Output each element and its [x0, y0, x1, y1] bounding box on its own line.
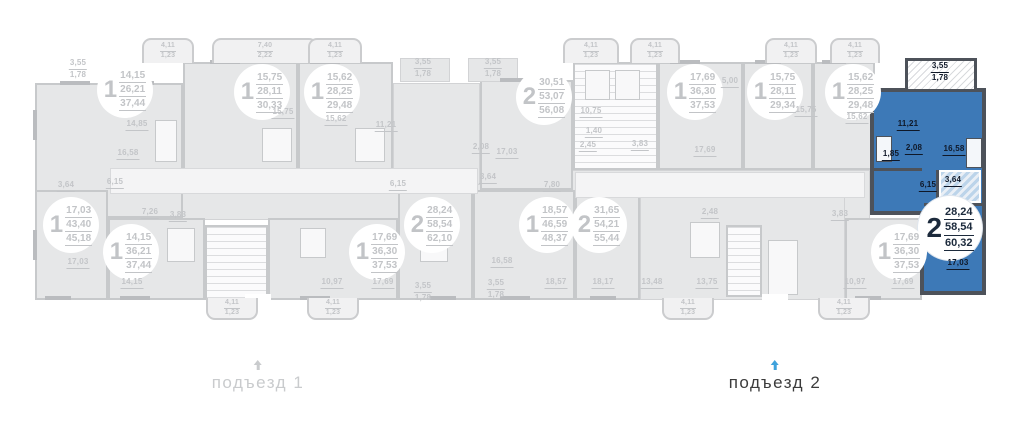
room-area-label: 3,64: [944, 175, 962, 187]
room-area-value-2: 1,78: [484, 69, 502, 79]
window-mark: [120, 296, 150, 300]
room-area-value: 17,03: [66, 257, 89, 269]
apartment-areas: 18,5746,5948,37: [541, 204, 568, 246]
apartment-badge[interactable]: 118,5746,5948,37: [519, 197, 575, 253]
apartment-areas: 28,2458,5462,10: [426, 204, 453, 246]
area-value: 17,69: [371, 231, 398, 245]
apartment-areas: 15,6228,2529,48: [326, 71, 353, 113]
room-area-label: 3,551,78: [487, 278, 505, 300]
apartment-badge[interactable]: 228,2458,5460,32: [918, 196, 982, 260]
area-value: 29,48: [326, 99, 353, 113]
area-value: 28,25: [326, 85, 353, 99]
area-value: 37,53: [893, 259, 920, 273]
room-area-label: 3,64: [57, 180, 75, 192]
balcony-bump: 4,111,23: [830, 38, 880, 63]
apartment-areas: 28,2458,5460,32: [944, 205, 974, 251]
room-area-label: 2,48: [701, 207, 719, 219]
room-area-label: 3,83: [831, 209, 849, 221]
area-value: 58,54: [944, 220, 974, 235]
room-area-value: 10,97: [843, 277, 866, 289]
apartment-badge[interactable]: 117,6936,3037,53: [349, 224, 405, 280]
interior-wall: [874, 168, 922, 171]
apartment-badge[interactable]: 117,0343,4045,18: [43, 197, 99, 253]
room-area-value: 13,75: [695, 277, 718, 289]
room-area-value: 14,15: [120, 277, 143, 289]
room-area-label: 15,75: [794, 105, 817, 117]
apartment-rooms-count: 2: [411, 211, 424, 239]
room-area-value: 16,58: [116, 148, 139, 160]
area-value: 17,69: [689, 71, 716, 85]
balcony-bump: 4,111,23: [206, 298, 258, 320]
room-area-label: 16,58: [942, 144, 965, 156]
apartment-rooms-count: 1: [356, 238, 369, 266]
apartment-rooms-count: 1: [754, 78, 767, 106]
room-area-value: 15,75: [794, 105, 817, 117]
balcony-dim-1: 4,11: [783, 42, 799, 52]
room-area-value: 5,00: [721, 76, 739, 88]
area-value: 28,24: [944, 205, 974, 220]
apartment-rooms-count: 1: [104, 76, 117, 104]
room-area-value: 3,55: [414, 57, 432, 69]
balcony-dim-1: 7,40: [257, 42, 273, 52]
room-area-value: 17,03: [946, 258, 969, 270]
balcony-bump: 4,111,23: [563, 38, 619, 63]
room-area-value-2: 1,78: [931, 73, 949, 83]
room-area-value: 3,64: [57, 180, 75, 192]
balcony-dim-2: 1,23: [837, 309, 851, 318]
entrance-1-marker[interactable]: подъезд 1: [212, 360, 305, 393]
room-area-label: 17,03: [946, 258, 969, 270]
window-mark: [33, 110, 37, 140]
apartment-areas: 14,1526,2137,44: [119, 69, 146, 111]
apartment-areas: 14,1536,2137,44: [125, 231, 152, 273]
room-area-label: 18,57: [544, 277, 567, 289]
room-area-label: 6,15: [389, 179, 407, 191]
room-area-value: 6,15: [389, 179, 407, 191]
area-value: 15,62: [847, 71, 874, 85]
area-value: 36,30: [371, 245, 398, 259]
room-area-label: 7,80: [543, 180, 561, 192]
balcony-dim-2: 1,23: [584, 52, 598, 61]
room-area-label: 3,64: [479, 172, 497, 184]
stairwell: [726, 225, 762, 297]
apartment-areas: 15,7528,1129,34: [769, 71, 796, 113]
apartment-rooms-count: 2: [578, 211, 591, 239]
area-value: 36,21: [125, 245, 152, 259]
room-area-value: 15,75: [271, 107, 294, 119]
apartment-rooms-count: 1: [110, 238, 123, 266]
room-area-label: 16,58: [116, 148, 139, 160]
area-value: 36,30: [689, 85, 716, 99]
room-area-label: 2,08: [905, 143, 923, 155]
apartment-rooms-count: 2: [926, 212, 942, 244]
entrance-label: подъезд 1: [212, 373, 305, 393]
window-mark: [430, 296, 456, 300]
elevator-shaft: [585, 70, 610, 100]
balcony-dim-1: 4,11: [224, 299, 240, 309]
area-value: 37,44: [119, 97, 146, 111]
room-area-value: 15,62: [324, 114, 347, 126]
apartment-areas: 17,6936,3037,53: [893, 231, 920, 273]
balcony-bump: 4,111,23: [142, 38, 194, 63]
apartment-rooms-count: 1: [50, 211, 63, 239]
room-area-value-2: 1,78: [487, 290, 505, 300]
room-area-label: 15,62: [845, 112, 868, 124]
room-area-label: 6,15: [106, 177, 124, 189]
room-area-value-2: 1,78: [414, 69, 432, 79]
window-mark: [33, 230, 37, 260]
apartment-badge[interactable]: 230,5153,0756,08: [516, 69, 572, 125]
corridor: [110, 168, 478, 194]
bathroom: [355, 128, 385, 162]
balcony-dim-2: 1,23: [848, 52, 862, 61]
room-area-value: 17,69: [693, 145, 716, 157]
room-area-value-2: 1,78: [69, 70, 87, 80]
balcony-dim-1: 4,11: [160, 42, 176, 52]
balcony-dim-1: 4,11: [327, 42, 343, 52]
area-value: 36,30: [893, 245, 920, 259]
room-area-value: 3,64: [479, 172, 497, 184]
area-value: 14,15: [119, 69, 146, 83]
room-area-value: 3,64: [944, 175, 962, 187]
window-mark: [45, 296, 71, 300]
bathroom: [262, 128, 292, 162]
room-area-value: 18,17: [591, 277, 614, 289]
area-value: 18,57: [541, 204, 568, 218]
apartment-areas: 31,6554,2155,44: [593, 204, 620, 246]
apartment-badge[interactable]: 115,6228,2529,48: [304, 64, 360, 120]
room-area-label: 17,69: [371, 277, 394, 289]
area-value: 17,03: [65, 204, 92, 218]
room-area-value: 2,08: [472, 142, 490, 154]
bathroom: [155, 120, 177, 162]
balcony-dim-1: 4,11: [647, 42, 663, 52]
area-value: 31,65: [593, 204, 620, 218]
room-area-value: 10,75: [579, 106, 602, 118]
area-value: 46,59: [541, 218, 568, 232]
area-value: 48,37: [541, 232, 568, 246]
room-area-value: 13,48: [640, 277, 663, 289]
room-area-label: 2,08: [472, 142, 490, 154]
area-value: 15,62: [326, 71, 353, 85]
balcony-bump: 4,111,23: [307, 298, 359, 320]
room-area-value: 17,69: [891, 277, 914, 289]
room-area-value: 3,55: [487, 278, 505, 290]
stairwell: [205, 225, 268, 300]
balcony-dim-1: 4,11: [836, 299, 852, 309]
balcony-bump: 4,111,23: [308, 38, 362, 63]
corridor: [575, 172, 865, 198]
room-area-value: 11,21: [897, 119, 920, 131]
apartment-rooms-count: 1: [674, 78, 687, 106]
area-value: 54,21: [593, 218, 620, 232]
elevator-shaft: [768, 240, 798, 295]
balcony-dim-1: 4,11: [583, 42, 599, 52]
room-area-value: 7,80: [543, 180, 561, 192]
room-area-label: 18,17: [591, 277, 614, 289]
room-area-value: 16,58: [942, 144, 965, 156]
area-value: 43,40: [65, 218, 92, 232]
apartment-rooms-count: 1: [241, 78, 254, 106]
bathroom: [690, 222, 720, 258]
room-area-label: 17,69: [891, 277, 914, 289]
balcony-dim-2: 1,23: [648, 52, 662, 61]
area-value: 29,48: [847, 99, 874, 113]
apartment-badge[interactable]: 228,2458,5462,10: [404, 197, 460, 253]
bathroom: [167, 228, 195, 262]
room-area-label: 6,15: [919, 180, 937, 192]
room-area-value: 7,26: [141, 207, 159, 219]
balcony-dim-2: 1,23: [784, 52, 798, 61]
balcony-dim-2: 2,22: [258, 52, 272, 61]
bathroom: [300, 228, 326, 258]
room-area-value: 14,85: [125, 119, 148, 131]
room-area-label: 10,75: [579, 106, 602, 118]
area-value: 56,08: [538, 104, 565, 118]
apartment-badge[interactable]: 117,6936,3037,53: [667, 64, 723, 120]
room-area-label: 7,26: [141, 207, 159, 219]
apartment-areas: 30,5153,0756,08: [538, 76, 565, 118]
balcony-bump: 4,111,23: [818, 298, 870, 320]
apartment-rooms-count: 1: [832, 78, 845, 106]
area-value: 28,11: [769, 85, 796, 99]
area-value: 14,15: [125, 231, 152, 245]
balcony-dim-1: 4,11: [325, 299, 341, 309]
area-value: 26,21: [119, 83, 146, 97]
room-area-value: 6,15: [106, 177, 124, 189]
room-area-label: 11,21: [897, 119, 920, 131]
apartment-rooms-count: 2: [523, 83, 536, 111]
room-area-label: 5,00: [721, 76, 739, 88]
area-value: 15,75: [769, 71, 796, 85]
kitchen-unit: [966, 138, 982, 168]
area-value: 53,07: [538, 90, 565, 104]
area-value: 29,34: [769, 99, 796, 113]
balcony-bump: 7,402,22: [212, 38, 318, 63]
up-arrow-icon: [729, 360, 822, 370]
room-area-value: 10,97: [320, 277, 343, 289]
area-value: 37,53: [689, 99, 716, 113]
balcony-bump: 4,111,23: [630, 38, 680, 63]
area-value: 37,53: [371, 259, 398, 273]
room-area-value: 6,15: [919, 180, 937, 192]
balcony-dim-2: 1,23: [328, 52, 342, 61]
room-area-label: 3,551,78: [484, 57, 502, 79]
room-area-label: 17,69: [693, 145, 716, 157]
room-area-value: 2,45: [579, 140, 597, 152]
apartment-rooms-count: 1: [526, 211, 539, 239]
room-area-value: 3,55: [931, 61, 949, 73]
room-area-label: 3,551,78: [69, 58, 87, 80]
room-area-label: 3,551,78: [414, 57, 432, 79]
room-area-label: 13,75: [695, 277, 718, 289]
room-area-label: 16,58: [490, 256, 513, 268]
up-arrow-icon: [212, 360, 305, 370]
apartment-badge[interactable]: 114,1536,2137,44: [103, 224, 159, 280]
elevator-shaft: [615, 70, 640, 100]
room-area-label: 13,48: [640, 277, 663, 289]
room-area-label: 15,62: [324, 114, 347, 126]
area-value: 45,18: [65, 232, 92, 246]
floor-plan-screenshot: 114,1526,2137,44115,7528,1130,33115,6228…: [0, 0, 1024, 427]
area-value: 30,51: [538, 76, 565, 90]
room-area-value: 2,48: [701, 207, 719, 219]
room-area-value: 3,83: [169, 210, 187, 222]
floor-plan: 114,1526,2137,44115,7528,1130,33115,6228…: [0, 0, 1024, 427]
room-area-value: 17,03: [495, 147, 518, 159]
room-area-label: 14,15: [120, 277, 143, 289]
balcony-dim-2: 1,23: [326, 309, 340, 318]
room-area-label: 1,40: [585, 126, 603, 138]
room-area-value: 18,57: [544, 277, 567, 289]
apartment-areas: 17,6936,3037,53: [689, 71, 716, 113]
window-mark: [60, 81, 90, 85]
area-value: 28,25: [847, 85, 874, 99]
room-area-value: 1,85: [882, 149, 900, 161]
room-area-label: 3,83: [631, 139, 649, 151]
apartment-rooms-count: 1: [878, 238, 891, 266]
room-area-label: 3,83: [169, 210, 187, 222]
room-area-value: 1,40: [585, 126, 603, 138]
window-mark: [590, 296, 616, 300]
room-area-value: 11,21: [375, 120, 398, 132]
room-area-value: 3,83: [631, 139, 649, 151]
room-area-label: 17,03: [495, 147, 518, 159]
room-area-value: 15,62: [845, 112, 868, 124]
room-area-label: 10,97: [843, 277, 866, 289]
room-area-value-2: 1,78: [414, 293, 432, 303]
room-area-label: 14,85: [125, 119, 148, 131]
apartment-areas: 17,0343,4045,18: [65, 204, 92, 246]
room-area-value: 3,83: [831, 209, 849, 221]
balcony-dim-2: 1,23: [225, 309, 239, 318]
room-area-label: 1,85: [882, 149, 900, 161]
entrance-door-2: [762, 294, 788, 303]
room-area-value: 17,69: [371, 277, 394, 289]
entrance-label: подъезд 2: [729, 373, 822, 393]
apartment-areas: 17,6936,3037,53: [371, 231, 398, 273]
room-area-label: 10,97: [320, 277, 343, 289]
balcony-dim-2: 1,23: [161, 52, 175, 61]
area-value: 58,54: [426, 218, 453, 232]
room-area-value: 3,55: [69, 58, 87, 70]
area-value: 55,44: [593, 232, 620, 246]
apartment-badge[interactable]: 114,1526,2137,44: [97, 62, 153, 118]
room-area-value: 3,55: [484, 57, 502, 69]
apartment-badge[interactable]: 117,6936,3037,53: [871, 224, 927, 280]
area-value: 28,24: [426, 204, 453, 218]
apartment-badge[interactable]: 231,6554,2155,44: [571, 197, 627, 253]
entrance-2-marker[interactable]: подъезд 2: [729, 360, 822, 393]
room-area-value: 16,58: [490, 256, 513, 268]
apartment-areas: 15,6228,2529,48: [847, 71, 874, 113]
area-value: 37,44: [125, 259, 152, 273]
room-area-label: 2,45: [579, 140, 597, 152]
apartment-rooms-count: 1: [311, 78, 324, 106]
room-area-label: 17,03: [66, 257, 89, 269]
room-area-label: 11,21: [375, 120, 398, 132]
balcony-bump: 4,111,23: [765, 38, 817, 63]
balcony-dim-1: 4,11: [847, 42, 863, 52]
balcony-dim-2: 1,23: [681, 309, 695, 318]
area-value: 60,32: [944, 236, 974, 251]
room-area-label: 3,551,78: [414, 281, 432, 303]
balcony-bump: 4,111,23: [662, 298, 714, 320]
room-area-value: 2,08: [905, 143, 923, 155]
room-area-label: 3,551,78: [931, 61, 949, 83]
area-value: 15,75: [256, 71, 283, 85]
area-value: 62,10: [426, 232, 453, 246]
area-value: 28,11: [256, 85, 283, 99]
area-value: 17,69: [893, 231, 920, 245]
room-area-value: 3,55: [414, 281, 432, 293]
balcony-dim-1: 4,11: [680, 299, 696, 309]
room-area-label: 15,75: [271, 107, 294, 119]
